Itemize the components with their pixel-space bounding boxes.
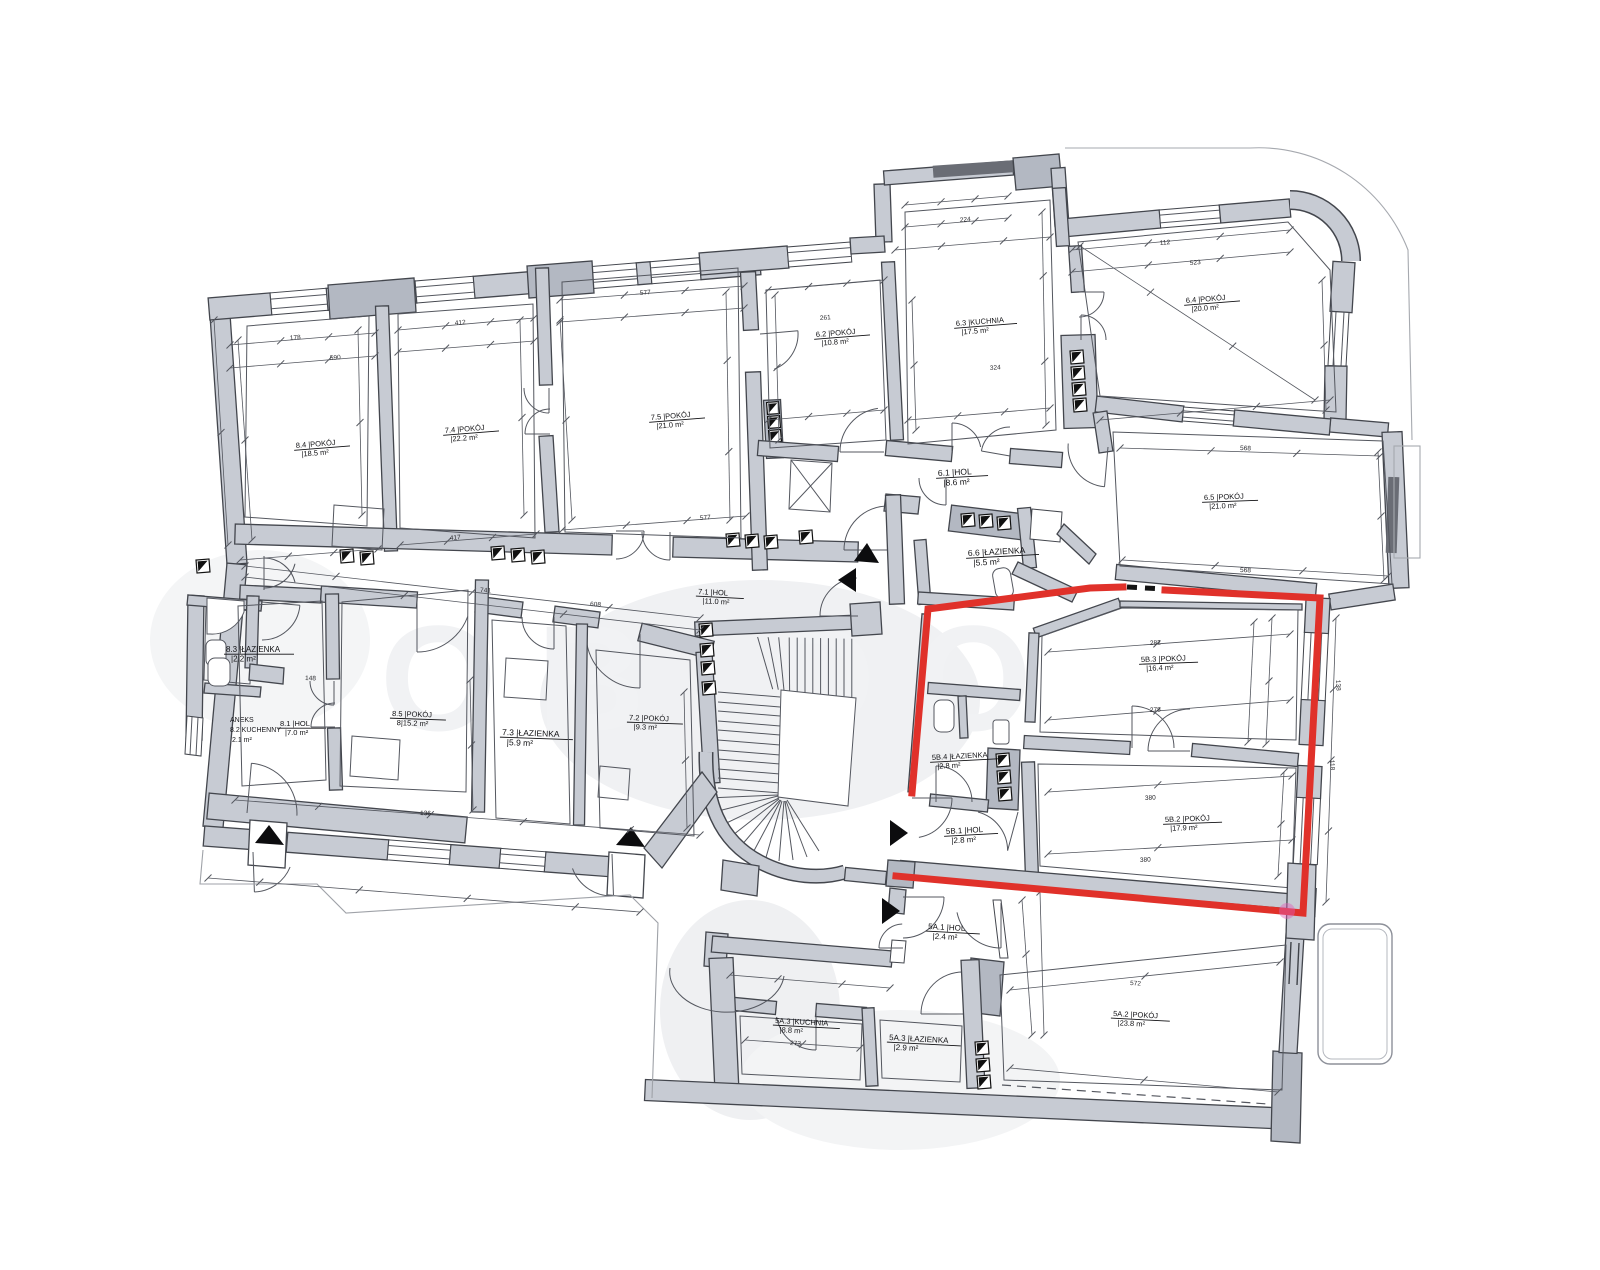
svg-text:112: 112 <box>1160 239 1171 247</box>
svg-text:|8.6 m²: |8.6 m² <box>943 476 970 487</box>
svg-text:608: 608 <box>590 601 602 609</box>
svg-text:278: 278 <box>1150 706 1162 714</box>
svg-text:8|15.2 m²: 8|15.2 m² <box>397 718 429 728</box>
svg-text:380: 380 <box>1145 794 1157 802</box>
svg-text:273: 273 <box>790 1040 802 1048</box>
svg-text:|9.3 m²: |9.3 m² <box>634 722 658 732</box>
svg-text:|7.0 m²: |7.0 m² <box>285 728 309 737</box>
svg-text:2.1 m²: 2.1 m² <box>232 737 253 744</box>
svg-text:261: 261 <box>820 314 832 322</box>
svg-text:|2.8 m²: |2.8 m² <box>951 835 977 845</box>
svg-text:|5.5 m²: |5.5 m² <box>973 556 1000 567</box>
svg-text:324: 324 <box>990 364 1002 372</box>
svg-text:ANEKS: ANEKS <box>230 717 254 724</box>
svg-text:417: 417 <box>450 534 462 542</box>
svg-text:8.1 |HOL: 8.1 |HOL <box>280 719 310 728</box>
svg-text:|8.8 m²: |8.8 m² <box>779 1025 803 1035</box>
svg-text:138: 138 <box>1334 680 1342 692</box>
svg-text:577: 577 <box>700 514 712 522</box>
svg-text:|5.9 m²: |5.9 m² <box>507 737 534 748</box>
svg-text:|2.9 m²: |2.9 m² <box>893 1043 919 1053</box>
svg-text:523: 523 <box>1190 259 1202 267</box>
svg-text:|2.2 m²: |2.2 m² <box>231 655 256 664</box>
svg-text:741: 741 <box>480 587 492 595</box>
svg-text:8.2 KUCHENNY: 8.2 KUCHENNY <box>230 727 281 734</box>
svg-text:|2.8 m²: |2.8 m² <box>937 760 961 770</box>
svg-text:8.3 |ŁAZIENKA: 8.3 |ŁAZIENKA <box>226 645 281 654</box>
svg-text:|21.0 m²: |21.0 m² <box>1209 501 1237 511</box>
svg-text:|17.9 m²: |17.9 m² <box>1170 823 1198 833</box>
svg-text:178: 178 <box>290 334 302 342</box>
svg-text:568: 568 <box>1240 445 1251 452</box>
svg-text:224: 224 <box>960 216 972 224</box>
svg-text:577: 577 <box>640 289 652 297</box>
svg-text:136: 136 <box>420 810 431 817</box>
svg-text:118: 118 <box>1328 760 1336 771</box>
svg-text:282: 282 <box>1150 639 1162 647</box>
svg-text:568: 568 <box>1240 567 1251 574</box>
svg-text:380: 380 <box>1140 856 1152 864</box>
svg-text:590: 590 <box>330 354 342 362</box>
svg-text:|2.4 m²: |2.4 m² <box>932 932 958 942</box>
svg-text:412: 412 <box>455 319 467 327</box>
svg-text:|11.0 m²: |11.0 m² <box>702 596 730 606</box>
svg-text:|23.8 m²: |23.8 m² <box>1117 1018 1145 1028</box>
svg-text:148: 148 <box>305 675 316 682</box>
svg-text:572: 572 <box>1130 980 1142 988</box>
svg-text:|16.4 m²: |16.4 m² <box>1146 663 1174 673</box>
